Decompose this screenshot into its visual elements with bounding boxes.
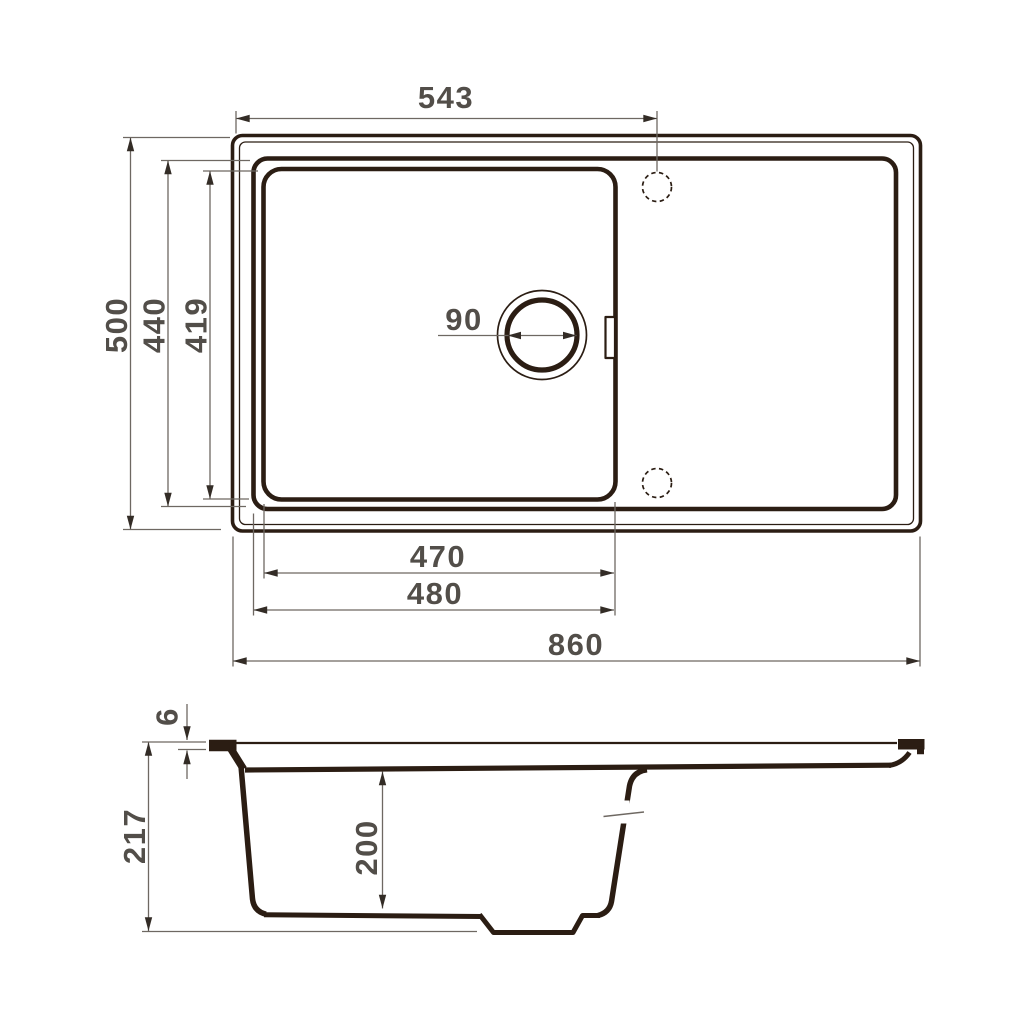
dim-label-419: 419: [179, 297, 214, 353]
section-bowl-right-wall: [598, 770, 647, 916]
section-bowl-bottom: [264, 915, 482, 917]
dim-label-217: 217: [117, 808, 152, 864]
section-drain-recess: [480, 915, 601, 933]
drawing-page: 543 500 440 419 90 470 480 860: [0, 0, 1024, 1024]
top-view: 543 500 440 419 90 470 480 860: [99, 80, 921, 667]
dim-label-480: 480: [407, 576, 463, 611]
overflow-gap-section: [613, 801, 630, 824]
sink-technical-drawing: 543 500 440 419 90 470 480 860: [0, 0, 1024, 1024]
dim-label-6: 6: [150, 707, 185, 726]
tap-hole-dashed-circle-bottom: [643, 469, 672, 498]
dim-label-500: 500: [99, 297, 134, 353]
tap-hole-dashed-circle-top: [643, 173, 672, 202]
section-view: 6 217 200: [117, 704, 925, 933]
dim-label-543: 543: [418, 80, 474, 115]
bowl-inner-outline: [264, 169, 616, 500]
section-right-rim-step: [889, 753, 910, 766]
dim-label-200: 200: [349, 819, 384, 875]
dim-label-90: 90: [445, 302, 482, 337]
dim-label-470: 470: [410, 539, 466, 574]
overflow-hole-top-view: [606, 317, 616, 358]
dim-label-860: 860: [548, 627, 604, 662]
section-bowl-left-wall: [241, 766, 266, 914]
section-drainboard-surface: [245, 765, 891, 770]
dim-label-440: 440: [137, 297, 172, 353]
